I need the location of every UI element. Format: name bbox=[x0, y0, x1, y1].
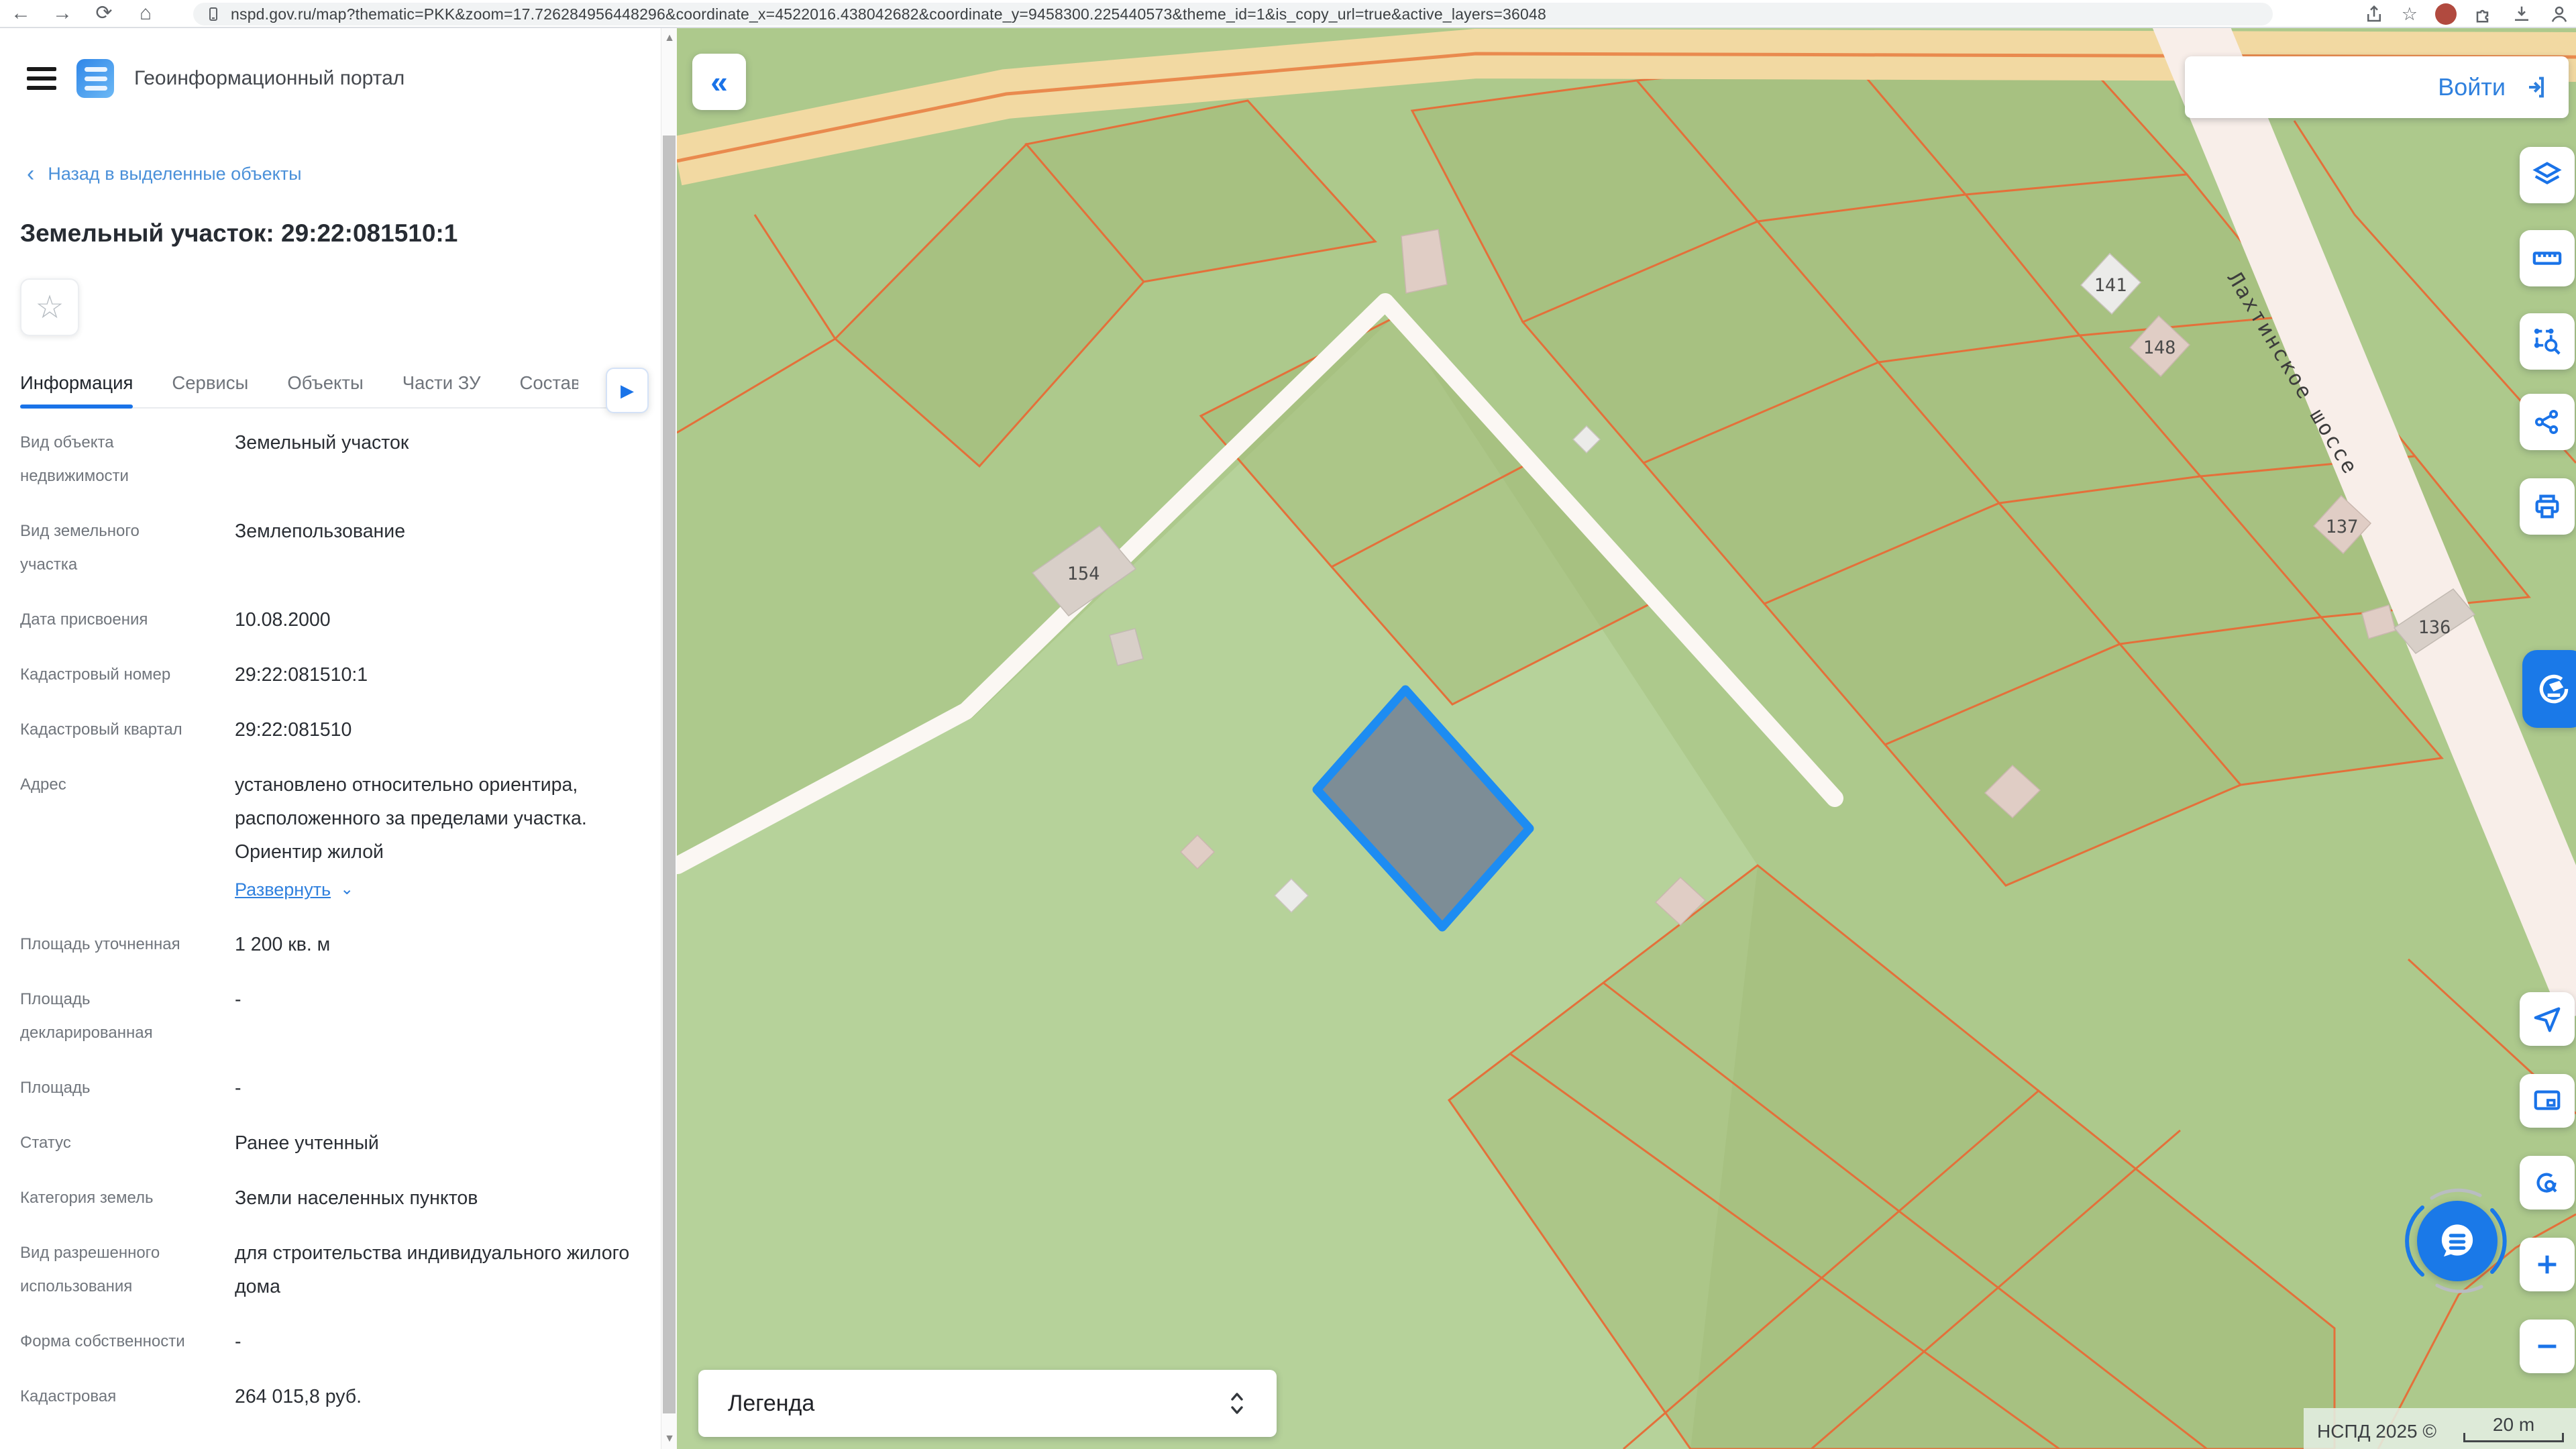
field-label: Площадь декларированная bbox=[20, 983, 198, 1050]
scroll-up-icon[interactable]: ▲ bbox=[661, 32, 678, 44]
field-label: Категория земель bbox=[20, 1181, 198, 1215]
parcel-label: 136 bbox=[2418, 617, 2451, 638]
scale-bar: 20 m bbox=[2463, 1415, 2564, 1445]
zoom-in-button[interactable] bbox=[2520, 1238, 2575, 1291]
field-row: Площадь декларированная- bbox=[20, 983, 641, 1050]
field-row: Категория земельЗемли населенных пунктов bbox=[20, 1181, 641, 1215]
field-label: Форма собственности bbox=[20, 1325, 198, 1358]
tab-2[interactable]: Сервисы bbox=[172, 372, 248, 394]
tab-4[interactable]: Части ЗУ bbox=[402, 372, 481, 394]
field-value: 10.08.2000 bbox=[235, 603, 641, 637]
tab-bar: ИнформацияСервисыОбъектыЧасти ЗУСостав bbox=[20, 372, 641, 409]
field-row: Адресустановлено относительно ориентира,… bbox=[20, 768, 641, 906]
chat-button[interactable] bbox=[2417, 1201, 2498, 1281]
print-button[interactable] bbox=[2520, 478, 2575, 535]
download-icon[interactable] bbox=[2512, 4, 2532, 24]
measure-button[interactable] bbox=[2520, 230, 2575, 286]
field-value: 1 200 кв. м bbox=[235, 928, 641, 961]
share-nodes-icon bbox=[2532, 407, 2563, 437]
info-panel: Геоинформационный портал ‹ Назад в выдел… bbox=[0, 28, 661, 1449]
overview-map-icon bbox=[2532, 1085, 2563, 1116]
map-attribution: НСПД 2025 © 20 m bbox=[2304, 1408, 2576, 1449]
field-row: Вид разрешенного использованиядля строит… bbox=[20, 1236, 641, 1303]
field-label: Кадастровая bbox=[20, 1380, 198, 1413]
field-label: Кадастровый квартал bbox=[20, 713, 198, 747]
collapse-icon: « bbox=[710, 64, 728, 100]
identify-parcel-icon bbox=[2535, 670, 2573, 708]
address-expand-link[interactable]: Развернуть⌄ bbox=[235, 873, 641, 906]
back-link-label: Назад в выделенные объекты bbox=[48, 164, 301, 184]
login-label: Войти bbox=[2438, 73, 2506, 101]
field-value: 29:22:081510 bbox=[235, 713, 641, 747]
parcel-label: 141 bbox=[2094, 275, 2127, 296]
area-search-button[interactable] bbox=[2520, 313, 2575, 370]
plus-icon bbox=[2532, 1249, 2563, 1280]
field-label: Дата присвоения bbox=[20, 603, 198, 637]
print-icon bbox=[2532, 491, 2563, 522]
map-canvas[interactable]: Лахтинское шоссе 141 148 154 137 136 « В… bbox=[677, 28, 2576, 1449]
legend-label: Легенда bbox=[728, 1391, 814, 1417]
field-row: Площадь уточненная1 200 кв. м bbox=[20, 928, 641, 961]
field-row: Площадь- bbox=[20, 1071, 641, 1105]
parcel-label: 154 bbox=[1067, 563, 1100, 584]
field-value: установлено относительно ориентира, расп… bbox=[235, 768, 641, 906]
field-label: Вид разрешенного использования bbox=[20, 1236, 198, 1303]
field-value: 264 015,8 руб. bbox=[235, 1380, 641, 1413]
hamburger-menu-icon[interactable] bbox=[27, 67, 56, 90]
field-row: Кадастровый номер29:22:081510:1 bbox=[20, 658, 641, 692]
parcel-label: 148 bbox=[2143, 337, 2176, 358]
field-label: Площадь bbox=[20, 1071, 198, 1105]
tab-5[interactable]: Состав bbox=[519, 372, 578, 394]
tabs-overflow-button[interactable]: ▶ bbox=[606, 368, 649, 413]
zoom-extent-button[interactable] bbox=[2520, 1156, 2575, 1210]
legend-chevrons-icon bbox=[1227, 1389, 1247, 1418]
share-icon[interactable] bbox=[2364, 4, 2384, 24]
right-arrow-icon: ▶ bbox=[621, 380, 634, 401]
identify-parcel-button[interactable] bbox=[2522, 650, 2576, 728]
zoom-out-button[interactable] bbox=[2520, 1320, 2575, 1373]
back-icon[interactable]: ← bbox=[0, 0, 42, 27]
field-list: Вид объекта недвижимостиЗемельный участо… bbox=[20, 426, 641, 1413]
area-select-zoom-icon bbox=[2532, 326, 2563, 357]
field-row: Форма собственности- bbox=[20, 1325, 641, 1358]
expand-chevron-icon: ⌄ bbox=[340, 873, 354, 906]
scrollbar-thumb[interactable] bbox=[663, 136, 676, 1413]
cadastral-map[interactable]: Лахтинское шоссе 141 148 154 137 136 bbox=[677, 28, 2576, 1449]
portal-title: Геоинформационный портал bbox=[134, 67, 405, 90]
back-to-selected-link[interactable]: ‹ Назад в выделенные объекты bbox=[27, 164, 661, 184]
chat-icon bbox=[2432, 1216, 2482, 1266]
login-icon bbox=[2519, 74, 2546, 101]
favorite-button[interactable]: ☆ bbox=[20, 278, 79, 336]
field-value: Землепользование bbox=[235, 515, 641, 582]
extensions-puzzle-icon[interactable] bbox=[2474, 4, 2494, 24]
scroll-down-icon[interactable]: ▼ bbox=[661, 1433, 678, 1445]
field-row: Кадастровая264 015,8 руб. bbox=[20, 1380, 641, 1413]
share-map-button[interactable] bbox=[2520, 394, 2575, 450]
locate-icon bbox=[2532, 1004, 2563, 1034]
field-label: Адрес bbox=[20, 768, 198, 906]
collapse-sidebar-button[interactable]: « bbox=[692, 54, 746, 110]
site-info-icon[interactable] bbox=[205, 6, 221, 22]
minus-icon bbox=[2532, 1331, 2563, 1362]
field-label: Площадь уточненная bbox=[20, 928, 198, 961]
login-button[interactable]: Войти bbox=[2185, 56, 2569, 118]
browser-chrome: ← → ⟳ ⌂ nspd.gov.ru/map?thematic=PKK&zoo… bbox=[0, 0, 2576, 28]
field-row: СтатусРанее учтенный bbox=[20, 1126, 641, 1160]
field-row: Кадастровый квартал29:22:081510 bbox=[20, 713, 641, 747]
home-icon[interactable]: ⌂ bbox=[125, 0, 166, 27]
field-row: Дата присвоения10.08.2000 bbox=[20, 603, 641, 637]
field-value: для строительства индивидуального жилого… bbox=[235, 1236, 641, 1303]
forward-icon[interactable]: → bbox=[42, 0, 83, 27]
field-value: - bbox=[235, 1071, 641, 1105]
legend-toggle[interactable]: Легенда bbox=[698, 1370, 1277, 1437]
field-row: Вид объекта недвижимостиЗемельный участо… bbox=[20, 426, 641, 493]
overview-map-button[interactable] bbox=[2520, 1074, 2575, 1128]
field-value: Земельный участок bbox=[235, 426, 641, 493]
bookmark-star-icon[interactable]: ☆ bbox=[2402, 4, 2418, 25]
tab-3[interactable]: Объекты bbox=[287, 372, 363, 394]
field-value: - bbox=[235, 1325, 641, 1358]
field-value: Ранее учтенный bbox=[235, 1126, 641, 1160]
field-value: 29:22:081510:1 bbox=[235, 658, 641, 692]
page-title: Земельный участок: 29:22:081510:1 bbox=[20, 219, 661, 248]
layers-button[interactable] bbox=[2520, 147, 2575, 203]
favorite-star-icon: ☆ bbox=[35, 288, 64, 326]
layers-icon bbox=[2532, 160, 2563, 191]
sidebar-scrollbar[interactable]: ▲ ▼ bbox=[661, 28, 677, 1449]
url-text: nspd.gov.ru/map?thematic=PKK&zoom=17.726… bbox=[231, 5, 1546, 23]
reload-icon[interactable]: ⟳ bbox=[83, 0, 125, 27]
field-label: Кадастровый номер bbox=[20, 658, 198, 692]
back-chevron-icon: ‹ bbox=[27, 165, 34, 183]
ruler-icon bbox=[2532, 243, 2563, 274]
zoom-extent-icon bbox=[2532, 1167, 2563, 1198]
profile-icon[interactable] bbox=[2549, 4, 2569, 24]
portal-logo bbox=[76, 59, 114, 98]
tab-1[interactable]: Информация bbox=[20, 372, 133, 394]
field-value: Земли населенных пунктов bbox=[235, 1181, 641, 1215]
avatar[interactable] bbox=[2435, 3, 2457, 25]
locate-me-button[interactable] bbox=[2520, 992, 2575, 1046]
parcel-label: 137 bbox=[2326, 517, 2359, 537]
field-label: Вид земельного участка bbox=[20, 515, 198, 582]
attribution-text: НСПД 2025 © bbox=[2317, 1418, 2436, 1445]
field-label: Статус bbox=[20, 1126, 198, 1160]
field-value: - bbox=[235, 983, 641, 1050]
address-bar[interactable]: nspd.gov.ru/map?thematic=PKK&zoom=17.726… bbox=[193, 3, 2273, 25]
field-row: Вид земельного участкаЗемлепользование bbox=[20, 515, 641, 582]
field-label: Вид объекта недвижимости bbox=[20, 426, 198, 493]
